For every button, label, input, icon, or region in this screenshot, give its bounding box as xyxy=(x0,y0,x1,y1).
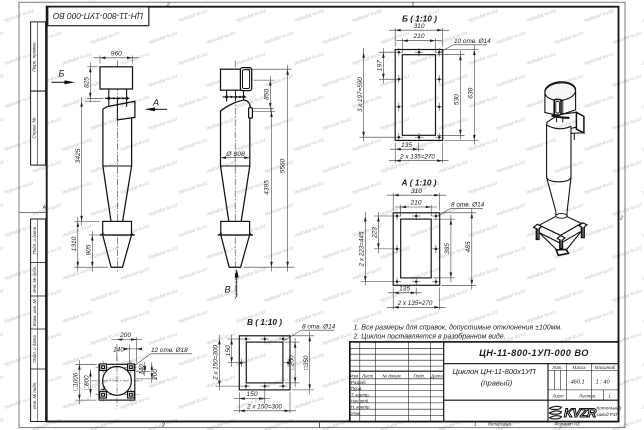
svg-text:10 отв. Ø14: 10 отв. Ø14 xyxy=(454,38,491,45)
svg-text:140: 140 xyxy=(139,364,146,375)
svg-text:ЦН-11-800-1УП-000 ВО: ЦН-11-800-1УП-000 ВО xyxy=(479,348,589,358)
svg-text:135: 135 xyxy=(401,142,412,149)
svg-text:А: А xyxy=(42,205,47,211)
svg-text:Б: Б xyxy=(59,69,65,79)
svg-text:960: 960 xyxy=(111,50,122,57)
svg-text:Б ( 1:10 ): Б ( 1:10 ) xyxy=(402,13,437,23)
svg-text:А: А xyxy=(152,98,159,108)
svg-text:3 x 197=590: 3 x 197=590 xyxy=(357,77,364,112)
svg-text:385: 385 xyxy=(444,243,451,254)
svg-text:825: 825 xyxy=(84,77,91,88)
svg-text:Подп. и дата: Подп. и дата xyxy=(32,335,37,363)
svg-text:310: 310 xyxy=(411,188,422,195)
svg-text:2: 2 xyxy=(161,422,165,428)
svg-text:5560: 5560 xyxy=(280,158,287,173)
svg-text:4395: 4395 xyxy=(264,180,271,195)
svg-text:2 x 150=300: 2 x 150=300 xyxy=(246,403,282,410)
svg-text:А ( 1:10 ): А ( 1:10 ) xyxy=(400,178,436,188)
svg-text:Инв. № дубл.: Инв. № дубл. xyxy=(32,266,37,293)
svg-text:Дата: Дата xyxy=(430,373,443,378)
svg-text:2 x 135=270: 2 x 135=270 xyxy=(397,300,433,307)
svg-text:2: 2 xyxy=(619,216,623,222)
svg-text:630: 630 xyxy=(468,87,475,98)
svg-text:Взам. инв. №: Взам. инв. № xyxy=(32,299,37,326)
svg-text:485: 485 xyxy=(465,241,472,252)
svg-text:Формат А3: Формат А3 xyxy=(554,422,580,427)
svg-text:Разраб.: Разраб. xyxy=(351,380,367,385)
svg-text:Подп.: Подп. xyxy=(413,373,425,378)
svg-text:530: 530 xyxy=(454,94,461,105)
svg-text:2 x 135=270: 2 x 135=270 xyxy=(399,153,435,160)
svg-text:1 : 40: 1 : 40 xyxy=(596,379,611,385)
svg-text:1310: 1310 xyxy=(71,236,78,251)
svg-text:2 x 150=300: 2 x 150=300 xyxy=(213,345,220,381)
svg-text:2: 2 xyxy=(166,2,170,8)
svg-text:Масштаб: Масштаб xyxy=(595,365,616,370)
svg-text:197: 197 xyxy=(377,60,384,71)
svg-text:Котельный: Котельный xyxy=(597,404,622,410)
svg-text:1. Все размеры для справок, до: 1. Все размеры для справок, допустимые о… xyxy=(354,324,563,332)
svg-text:8 отв. Ø14: 8 отв. Ø14 xyxy=(451,202,485,209)
svg-text:В ( 1:10 ): В ( 1:10 ) xyxy=(247,317,282,327)
svg-text:Циклон ЦН-11-800х1УП: Циклон ЦН-11-800х1УП xyxy=(452,367,536,376)
svg-text:В: В xyxy=(225,284,231,294)
svg-text:Н. контр.: Н. контр. xyxy=(351,405,371,410)
svg-text:140: 140 xyxy=(113,346,124,353)
svg-text:Подп. и дата: Подп. и дата xyxy=(32,226,37,254)
svg-text:№ докум.: № докум. xyxy=(382,373,401,378)
svg-text:135: 135 xyxy=(399,285,410,292)
svg-text:□800: □800 xyxy=(84,375,91,390)
svg-text:150: 150 xyxy=(246,391,257,398)
svg-text:210: 210 xyxy=(409,200,421,207)
svg-text:310: 310 xyxy=(413,23,424,30)
svg-text:200: 200 xyxy=(152,369,159,381)
svg-text:Изм.: Изм. xyxy=(350,373,359,378)
svg-text:Лит.: Лит. xyxy=(551,365,562,370)
svg-text:(правый): (правый) xyxy=(481,378,513,387)
svg-text:□350: □350 xyxy=(303,355,310,370)
svg-text:□1006: □1006 xyxy=(73,372,80,390)
svg-text:850: 850 xyxy=(263,89,270,100)
svg-text:Лист: Лист xyxy=(551,393,564,398)
svg-text:□250: □250 xyxy=(288,355,295,370)
svg-text:200: 200 xyxy=(119,332,131,339)
svg-text:2 x 223=445: 2 x 223=445 xyxy=(359,231,366,267)
svg-text:Копировал: Копировал xyxy=(488,422,511,427)
svg-text:Перв. примен.: Перв. примен. xyxy=(32,41,37,72)
svg-text:Пров.: Пров. xyxy=(351,386,363,391)
svg-text:1: 1 xyxy=(474,422,477,427)
svg-text:Справ. №: Справ. № xyxy=(32,118,37,139)
svg-text:Лист: Лист xyxy=(361,373,374,378)
svg-text:8 отв. Ø14: 8 отв. Ø14 xyxy=(302,324,336,331)
svg-text:KVZR: KVZR xyxy=(564,406,596,420)
svg-text:460,1: 460,1 xyxy=(571,379,585,385)
svg-text:12 отв. Ø18: 12 отв. Ø18 xyxy=(151,347,188,354)
svg-text:905: 905 xyxy=(86,244,93,255)
svg-text:Масса: Масса xyxy=(573,365,587,370)
svg-text:Ø 808: Ø 808 xyxy=(225,151,245,158)
svg-text:150: 150 xyxy=(225,345,232,356)
svg-text:Инв. № подл.: Инв. № подл. xyxy=(32,382,37,409)
svg-text:223: 223 xyxy=(372,227,379,239)
svg-text:завод РЗП: завод РЗП xyxy=(596,412,620,417)
svg-text:Утв.: Утв. xyxy=(351,411,361,416)
svg-text:ЦН-11-800-1УП-000 ВО: ЦН-11-800-1УП-000 ВО xyxy=(52,11,143,21)
svg-text:3425: 3425 xyxy=(75,148,82,163)
svg-text:210: 210 xyxy=(412,33,424,40)
svg-text:2. Циклон поставляется в разоб: 2. Циклон поставляется в разобранном вид… xyxy=(353,332,506,340)
svg-text:Нач.отд.: Нач.отд. xyxy=(351,398,370,403)
svg-text:Т. контр.: Т. контр. xyxy=(351,392,370,397)
svg-text:Листов: Листов xyxy=(578,393,596,398)
